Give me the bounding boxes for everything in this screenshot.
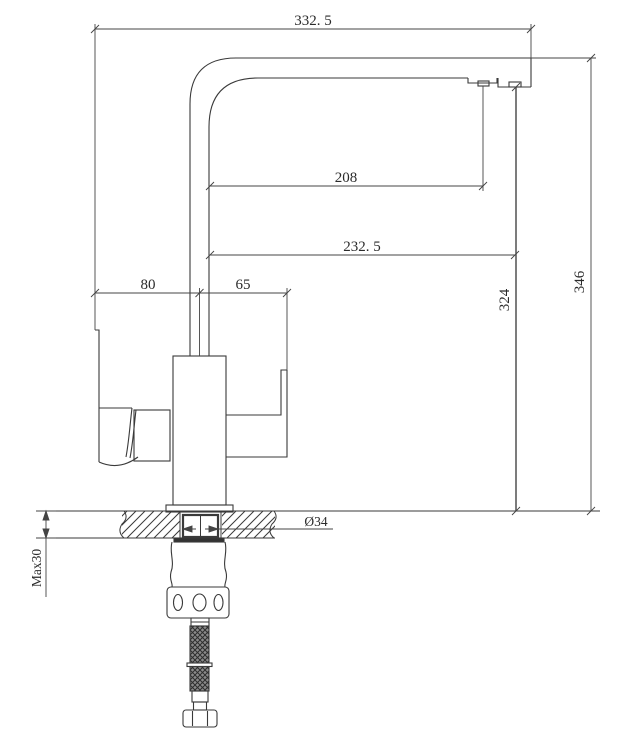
- main-nozzle-aerator: [509, 82, 521, 87]
- braided-hose-lower: [190, 667, 209, 692]
- spout-inner-profile: [209, 78, 468, 356]
- hex-nut: [183, 710, 217, 727]
- dim-max30-arrow-up: [43, 511, 49, 520]
- dim-dia34-arrowhead-left: [183, 526, 192, 532]
- dim-label-hole-diameter: Ø34: [304, 514, 327, 529]
- dim-label-main-reach: 232. 5: [343, 239, 381, 255]
- hose-fitting-upper: [192, 691, 208, 702]
- cartridge-housing: [134, 410, 170, 461]
- mounting-nut: [167, 587, 229, 618]
- nut-hole-right: [214, 595, 223, 611]
- dim-label-body-offset: 65: [236, 277, 251, 293]
- faucet-dimension-drawing: 332. 5 208 232. 5 80 65 324 346 Ø34 Max3…: [0, 0, 617, 740]
- dim-dia34-arrowhead-right: [209, 526, 218, 532]
- faucet-outline: [95, 58, 531, 512]
- handle-swing-arc: [99, 457, 138, 466]
- under-counter-parts: [167, 538, 229, 727]
- drawing-canvas: 332. 5 208 232. 5 80 65 324 346 Ø34 Max3…: [0, 0, 617, 740]
- faucet-body: [173, 356, 226, 505]
- spout-outer-profile: [190, 58, 531, 356]
- nut-hole-center: [193, 594, 206, 611]
- shank-left-edge: [170, 542, 172, 587]
- hose-fitting-lower: [194, 702, 207, 710]
- handle-bar: [95, 330, 99, 462]
- dim-label-total-reach: 332. 5: [294, 13, 332, 29]
- braided-hose-upper: [190, 626, 209, 663]
- dim-max30-arrow-down: [43, 529, 49, 538]
- dim-label-max-thickness: Max30: [29, 549, 44, 587]
- dim-label-aux-reach: 208: [335, 170, 358, 186]
- dim-label-handle-offset: 80: [141, 277, 156, 293]
- dim-label-spout-height: 346: [572, 270, 588, 293]
- break-line-right: [270, 511, 276, 538]
- dimension-labels: 332. 5 208 232. 5 80 65 324 346 Ø34 Max3…: [29, 13, 588, 587]
- side-wing-outline: [226, 370, 287, 457]
- gasket-washer: [174, 538, 224, 542]
- dim-label-aux-height: 324: [497, 288, 513, 311]
- hex-nut-facets: [193, 711, 208, 726]
- nut-hole-left: [174, 595, 183, 611]
- shank-right-edge: [225, 542, 227, 587]
